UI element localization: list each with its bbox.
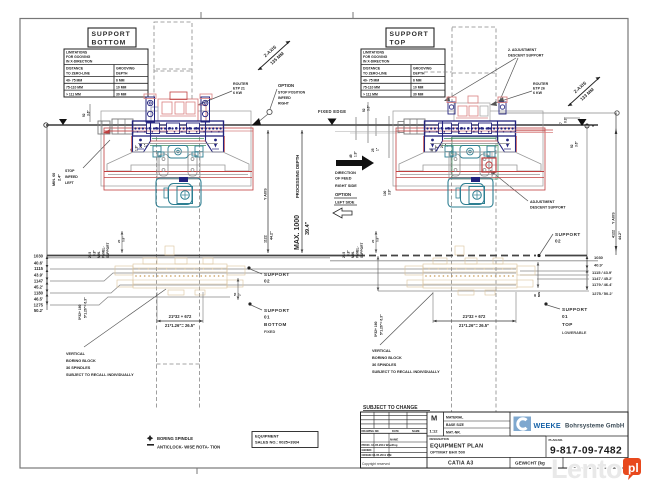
svg-text:1:12: 1:12: [430, 429, 439, 434]
svg-text:21*1.26"= 26.5": 21*1.26"= 26.5": [459, 323, 489, 328]
svg-text:LIMITATIONS: LIMITATIONS: [66, 51, 88, 55]
svg-text:MATERIAL: MATERIAL: [446, 416, 463, 420]
svg-text:Y AXIS: Y AXIS: [264, 188, 268, 200]
svg-text:INFEED: INFEED: [65, 175, 78, 179]
svg-text:STOP POSITION: STOP POSITION: [278, 91, 306, 95]
svg-text:BORING BLOCK: BORING BLOCK: [372, 356, 402, 360]
svg-text:> 111 MM: > 111 MM: [66, 92, 81, 96]
svg-text:25: 25: [371, 148, 375, 152]
svg-text:1275: 1275: [34, 302, 44, 307]
svg-text:BOTTOM: BOTTOM: [264, 322, 287, 327]
svg-text:INFEED: INFEED: [278, 96, 291, 100]
svg-text:20: 20: [117, 239, 121, 243]
svg-text:75-110 MM: 75-110 MM: [66, 86, 83, 90]
svg-text:RIGHT SIDE: RIGHT SIDE: [335, 184, 357, 188]
svg-text:MAX. 1000: MAX. 1000: [294, 215, 301, 250]
svg-text:DESCENT SUPPORT: DESCENT SUPPORT: [508, 54, 544, 58]
svg-text:TOP: TOP: [562, 322, 573, 327]
svg-text:DISTANCE: DISTANCE: [363, 67, 381, 71]
svg-text:IN X-DIRECTION: IN X-DIRECTION: [363, 60, 390, 64]
svg-text:46.5': 46.5': [34, 296, 43, 301]
svg-text:39.4": 39.4": [305, 221, 311, 235]
svg-text:1122: 1122: [264, 235, 268, 243]
svg-text:100: 100: [383, 190, 387, 196]
svg-text:1030: 1030: [594, 255, 604, 260]
svg-text:30 MM: 30 MM: [116, 92, 127, 96]
svg-text:36 SPINDLES: 36 SPINDLES: [372, 363, 397, 367]
svg-text:SUPPORT: SUPPORT: [390, 31, 429, 38]
svg-text:ANTICLOCK- WISE ROTA- TION: ANTICLOCK- WISE ROTA- TION: [157, 445, 220, 450]
svg-text:75-110 MM: 75-110 MM: [363, 86, 380, 90]
svg-text:BORING SPINDLE: BORING SPINDLE: [157, 436, 193, 441]
svg-text:SUPPORT: SUPPORT: [562, 307, 588, 312]
svg-text:DESCENT SUPPORT: DESCENT SUPPORT: [530, 206, 566, 210]
svg-text:6 MM: 6 MM: [413, 79, 422, 83]
svg-text:6 KW: 6 KW: [533, 91, 543, 95]
svg-text:02: 02: [555, 239, 561, 244]
svg-text:GROOVING: GROOVING: [413, 67, 432, 71]
svg-text:Y AXIS: Y AXIS: [612, 212, 616, 224]
svg-text:MIN.: MIN.: [351, 251, 355, 258]
svg-text:40.6': 40.6': [34, 260, 43, 265]
svg-text:1115: 1115: [34, 266, 44, 271]
svg-text:FOR GOOVING: FOR GOOVING: [363, 55, 388, 59]
svg-text:Copyright reserved: Copyright reserved: [362, 462, 390, 466]
svg-text:VERTICAL: VERTICAL: [372, 349, 392, 353]
svg-text:SUBJECT TO RECALL INDIVIDUALLY: SUBJECT TO RECALL INDIVIDUALLY: [372, 370, 440, 374]
svg-text:PROD. 04.05.2011 Woelfing: PROD. 04.05.2011 Woelfing: [362, 443, 398, 447]
svg-text:DESIGNATION: DESIGNATION: [430, 437, 449, 441]
svg-text:1179 ∕ 46.4': 1179 ∕ 46.4': [592, 282, 612, 287]
svg-text:2. ADJUSTMENT: 2. ADJUSTMENT: [508, 48, 537, 52]
svg-text:CATIA A3: CATIA A3: [448, 461, 474, 467]
svg-text:21*32 + 672: 21*32 + 672: [169, 314, 192, 319]
svg-text:5*1.26"= 6.3": 5*1.26"= 6.3": [380, 314, 384, 335]
svg-text:20.5: 20.5: [342, 252, 346, 258]
svg-text:21*32 + 672: 21*32 + 672: [463, 314, 486, 319]
svg-text:36 SPINDLES: 36 SPINDLES: [66, 366, 91, 370]
svg-text:RIGHT: RIGHT: [278, 102, 290, 106]
svg-text:02: 02: [264, 279, 270, 284]
svg-text:92: 92: [362, 108, 366, 112]
svg-text:DEPTH: DEPTH: [116, 72, 128, 76]
svg-text:NAME: NAME: [412, 429, 420, 433]
svg-text:1147: 1147: [34, 278, 44, 283]
svg-text:LOWERABLE: LOWERABLE: [562, 331, 587, 335]
svg-text:1": 1": [376, 147, 380, 151]
svg-text:LEFT SIDE: LEFT SIDE: [335, 201, 355, 205]
svg-text:92: 92: [570, 144, 574, 148]
svg-text:ROUTER: ROUTER: [533, 82, 549, 86]
svg-text:01: 01: [264, 315, 270, 320]
svg-text:> 111 MM: > 111 MM: [363, 92, 378, 96]
svg-text:OF FEED: OF FEED: [335, 177, 352, 181]
svg-text:40- 75 MM: 40- 75 MM: [66, 79, 82, 83]
svg-text:SUBJECT TO RECALL INDIVIDUALLY: SUBJECT TO RECALL INDIVIDUALLY: [66, 373, 134, 377]
svg-text:EQUIPMENT: EQUIPMENT: [255, 434, 279, 439]
svg-text:SALES NO.: 0025+3934: SALES NO.: 0025+3934: [255, 440, 300, 445]
svg-text:4122: 4122: [612, 230, 616, 238]
svg-text:44.2": 44.2": [618, 231, 622, 240]
svg-text:43.9': 43.9': [34, 272, 43, 277]
svg-text:SUPPORT: SUPPORT: [106, 243, 110, 258]
svg-text:MAT.-NR.: MAT.-NR.: [446, 431, 461, 435]
svg-text:1275 ∕ 50.2': 1275 ∕ 50.2': [592, 291, 613, 296]
svg-text:40.9': 40.9': [594, 263, 603, 268]
svg-text:STOP: STOP: [65, 169, 75, 173]
svg-text:10 MM: 10 MM: [413, 86, 424, 90]
svg-text:10 MM: 10 MM: [116, 86, 127, 90]
svg-text:3.6": 3.6": [575, 141, 579, 147]
svg-text:1180: 1180: [34, 290, 44, 295]
svg-text:NAME: NAME: [390, 438, 398, 442]
svg-text:20.5: 20.5: [88, 252, 92, 258]
svg-text:0.8": 0.8": [93, 250, 97, 256]
svg-text:GEWICHT (kg: GEWICHT (kg: [515, 461, 545, 466]
svg-text:VERTICAL: VERTICAL: [66, 352, 86, 356]
svg-text:BASE SIZE: BASE SIZE: [446, 423, 465, 427]
svg-text:0.8": 0.8": [347, 250, 351, 256]
svg-text:ETP 21: ETP 21: [233, 87, 245, 91]
svg-text:LEFT: LEFT: [65, 181, 75, 185]
svg-text:DATE: DATE: [392, 429, 399, 433]
svg-text:3.6": 3.6": [367, 105, 371, 111]
svg-text:WEEKE: WEEKE: [534, 421, 561, 430]
svg-text:7: 7: [559, 122, 563, 124]
svg-text:3.9": 3.9": [388, 189, 392, 195]
svg-text:TO ZERO-LINE: TO ZERO-LINE: [363, 72, 388, 76]
svg-text:5*32+ 160: 5*32+ 160: [78, 304, 82, 320]
svg-text:IN X-DIRECTION: IN X-DIRECTION: [66, 60, 93, 64]
svg-text:30 MM: 30 MM: [413, 92, 424, 96]
svg-text:LIMITATIONS: LIMITATIONS: [363, 51, 385, 55]
svg-text:ORIGIN 04.05.2011 WB: ORIGIN 04.05.2011 WB: [362, 453, 392, 457]
svg-text:Lento: Lento: [551, 454, 622, 484]
svg-text:BORING BLOCK: BORING BLOCK: [66, 359, 96, 363]
svg-text:ROUTER: ROUTER: [233, 82, 249, 86]
svg-text:DRAWING NR.: DRAWING NR.: [362, 429, 380, 433]
svg-text:ADJUSTMENT: ADJUSTMENT: [530, 200, 555, 204]
svg-text:M: M: [431, 414, 437, 423]
svg-text:SUPPORT: SUPPORT: [264, 272, 290, 277]
svg-text:2.4": 2.4": [58, 174, 62, 181]
svg-text:6 MM: 6 MM: [116, 79, 125, 83]
svg-text:PANEL-: PANEL-: [102, 246, 106, 258]
svg-text:DIRECTION: DIRECTION: [335, 171, 356, 175]
svg-text:1147 ∕ 45.2': 1147 ∕ 45.2': [592, 276, 612, 281]
svg-text:TOP: TOP: [390, 40, 407, 47]
svg-text:DEPTH: DEPTH: [413, 72, 425, 76]
svg-text:OPTION: OPTION: [335, 192, 351, 197]
svg-text:1.9": 1.9": [354, 151, 358, 157]
svg-text:TO ZERO-LINE: TO ZERO-LINE: [66, 72, 91, 76]
svg-text:01: 01: [562, 314, 568, 319]
svg-text:40- 75 MM: 40- 75 MM: [363, 79, 379, 83]
svg-text:44.2": 44.2": [270, 231, 274, 240]
svg-text:DISTANCE: DISTANCE: [66, 67, 84, 71]
svg-text:OPTION: OPTION: [278, 83, 294, 88]
svg-text:FOR GOOVING: FOR GOOVING: [66, 55, 91, 59]
svg-text:FIXED EDGE: FIXED EDGE: [318, 109, 346, 114]
svg-text:MIN.: MIN.: [97, 251, 101, 258]
svg-text:45.2': 45.2': [34, 284, 43, 289]
svg-text:92: 92: [82, 113, 86, 117]
svg-text:50: 50: [233, 292, 237, 296]
svg-text:MIN: MIN: [537, 292, 541, 297]
svg-text:SUPPORT: SUPPORT: [92, 31, 131, 38]
svg-text:SUPPORT: SUPPORT: [360, 243, 364, 258]
svg-text:pl: pl: [628, 461, 639, 475]
svg-text:1115 ∕ 43.9': 1115 ∕ 43.9': [592, 270, 612, 275]
svg-text:MIN. 60: MIN. 60: [52, 173, 56, 186]
svg-text:1.9": 1.9": [135, 145, 139, 151]
svg-text:PROCESSING DEPTH: PROCESSING DEPTH: [295, 155, 300, 198]
svg-text:GENER.: GENER.: [362, 448, 373, 452]
svg-text:49: 49: [349, 154, 353, 158]
svg-text:Bohrsysteme GmbH: Bohrsysteme GmbH: [565, 424, 624, 430]
svg-text:0.3": 0.3": [564, 117, 568, 123]
svg-text:5*32+ 160: 5*32+ 160: [374, 321, 378, 337]
svg-text:5*1.26"= 6.3": 5*1.26"= 6.3": [84, 297, 88, 318]
svg-text:PANEL-: PANEL-: [356, 246, 360, 258]
svg-text:SUPPORT: SUPPORT: [555, 232, 581, 237]
svg-text:GROOVING: GROOVING: [116, 67, 135, 71]
svg-text:1030: 1030: [34, 253, 44, 258]
svg-text:ETP 26: ETP 26: [533, 87, 545, 91]
svg-text:SUPPORT: SUPPORT: [264, 308, 290, 313]
svg-text:6 KW: 6 KW: [233, 91, 243, 95]
svg-text:20: 20: [371, 239, 375, 243]
svg-text:PLAN-NO.: PLAN-NO.: [549, 438, 564, 442]
svg-text:21*1.26"= 26.5": 21*1.26"= 26.5": [165, 323, 195, 328]
svg-text:BOTTOM: BOTTOM: [92, 40, 127, 47]
svg-text:50.2': 50.2': [34, 308, 43, 313]
svg-text:OPTIMAT BHX 500: OPTIMAT BHX 500: [430, 450, 466, 455]
svg-text:FIXED: FIXED: [264, 330, 275, 334]
